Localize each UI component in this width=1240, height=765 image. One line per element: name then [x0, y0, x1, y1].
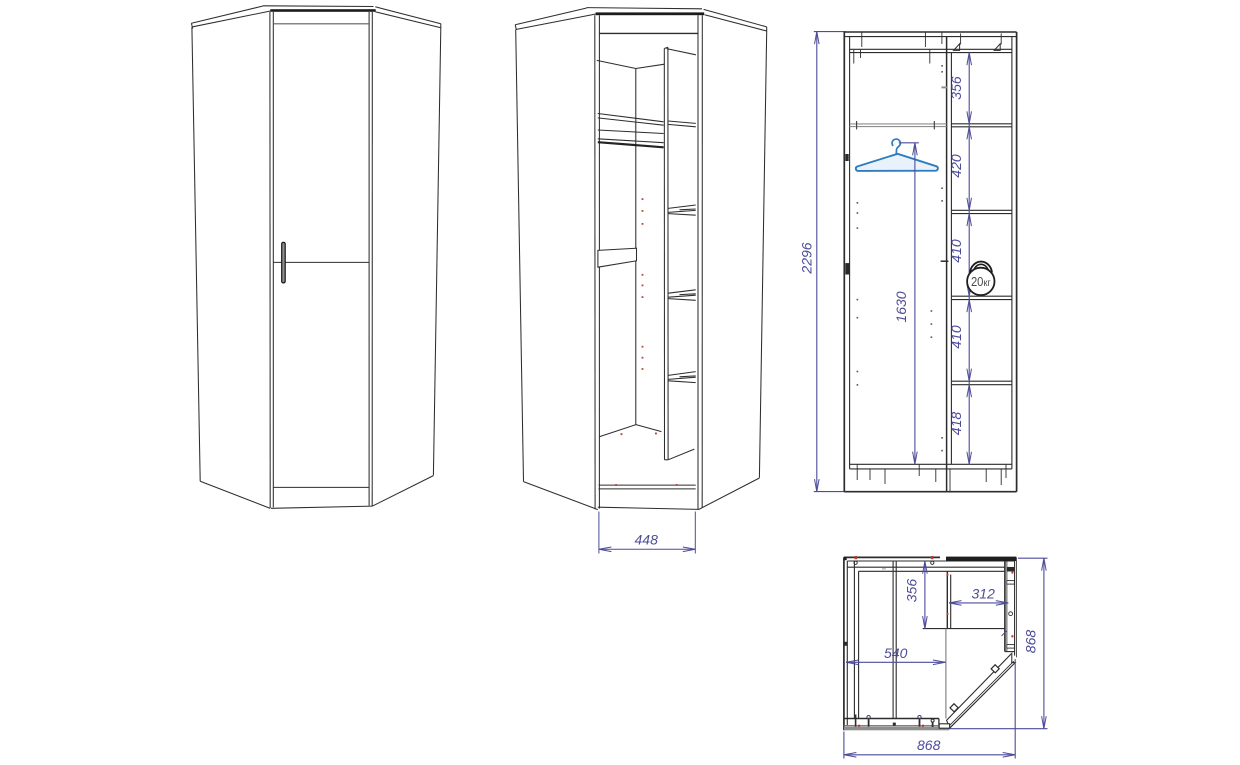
svg-text:356: 356	[948, 76, 964, 100]
svg-text:20кг: 20кг	[971, 274, 991, 289]
svg-text:2296: 2296	[799, 242, 815, 274]
svg-text:868: 868	[1023, 630, 1039, 654]
svg-text:410: 410	[948, 325, 964, 349]
svg-text:868: 868	[917, 737, 941, 753]
svg-text:1630: 1630	[893, 291, 909, 322]
svg-text:420: 420	[948, 154, 964, 178]
svg-text:356: 356	[904, 579, 920, 603]
svg-text:448: 448	[635, 532, 659, 548]
svg-text:312: 312	[972, 586, 996, 602]
svg-text:410: 410	[948, 239, 964, 263]
svg-text:418: 418	[948, 412, 964, 436]
svg-text:540: 540	[884, 645, 908, 661]
